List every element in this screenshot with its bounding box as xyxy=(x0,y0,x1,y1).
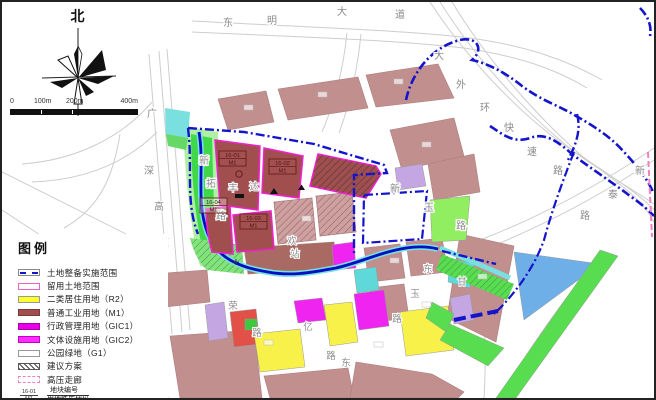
legend-item-label: 普通工业用地（M1） xyxy=(47,307,130,319)
map-label: 欢 xyxy=(287,235,297,247)
road-label-char: 新 xyxy=(390,182,400,195)
map-label: 站 xyxy=(290,248,300,260)
legend-item: 普通工业用地（M1） xyxy=(18,306,168,319)
road-label-char: 新 xyxy=(635,164,645,177)
map-label: 亿 xyxy=(303,321,313,333)
legend-item-label: 文体设施用地（GIC2） xyxy=(47,334,138,346)
parcel-id: 16-02 xyxy=(275,161,290,167)
road-label-char: 大 xyxy=(434,49,444,62)
scale-bar: 0 100m 200m 400m xyxy=(10,98,138,120)
planning-map-page: 东 明 大 道 大 外 环 快 速 路 新 泰 路 广 深 高 速 新 拓 路 … xyxy=(0,0,656,400)
road-label-char: 道 xyxy=(395,8,405,21)
scale-bar-ticks: 0 100m 200m 400m xyxy=(10,98,138,108)
hv-corridor-line xyxy=(648,152,652,237)
parcel-id: 16-04 xyxy=(206,200,222,206)
road-label-char: 玉 xyxy=(424,203,434,214)
map-label: 路 xyxy=(252,327,262,339)
road-label-char: 广 xyxy=(147,108,157,120)
road-label-char: 路 xyxy=(553,164,563,177)
legend-code-top: 地块编号 xyxy=(47,387,89,397)
legend: 图例 土地整备实施范围 留用土地范围 二类居住用地（R2） 普通工业用地（M1）… xyxy=(10,234,168,400)
road-label-char: 明 xyxy=(267,15,277,27)
legend-item-code: 16-01 M1 地块编号 用地性质代码 xyxy=(18,387,168,400)
road-label-char: 新 xyxy=(199,154,209,167)
road-label-char: 泰 xyxy=(608,188,618,201)
legend-item-label: 高压走廊 xyxy=(47,374,82,386)
road-label-char: 高 xyxy=(154,200,164,213)
legend-swatch-parcel-code: 16-01 M1 xyxy=(18,389,40,400)
parcel-label-16-02: 16-02 M1 xyxy=(269,159,296,175)
legend-swatch-proposal-hatch xyxy=(18,363,40,370)
legend-item: 公园绿地（G1） xyxy=(18,346,168,359)
road-label-char: 路 xyxy=(456,219,466,232)
legend-item: 二类居住用地（R2） xyxy=(18,293,168,306)
legend-item: 建议方案 xyxy=(18,360,168,373)
legend-item-label: 建议方案 xyxy=(47,360,82,372)
legend-sample-id: 16-01 xyxy=(20,389,38,396)
scale-bar-rule xyxy=(10,109,138,115)
legend-item-label: 地块编号 用地性质代码 xyxy=(47,387,89,400)
legend-swatch-culture-gic2 xyxy=(18,336,40,343)
legend-swatch-park-g1 xyxy=(18,350,40,357)
map-label: 甘 xyxy=(457,276,467,288)
road-label-char: 深 xyxy=(144,165,154,177)
road-label-char: 快 xyxy=(504,122,514,134)
scale-tick: 200m xyxy=(66,98,84,105)
legend-item: 高压走廊 xyxy=(18,373,168,386)
map-label: 玉 xyxy=(410,289,420,300)
scale-tick: 100m xyxy=(34,98,52,105)
legend-swatch-retained-land xyxy=(18,283,40,290)
scale-tick: 0 xyxy=(10,98,14,105)
road-label-char: 大 xyxy=(337,5,347,18)
map-label: 荣 xyxy=(228,300,238,312)
map-label: 东 xyxy=(423,263,433,275)
map-label: 路 xyxy=(392,313,402,325)
map-label: 丰 xyxy=(228,182,238,194)
legend-item: 行政管理用地（GIC1） xyxy=(18,320,168,333)
legend-item: 土地整备实施范围 xyxy=(18,266,168,279)
legend-item-label: 土地整备实施范围 xyxy=(47,267,117,279)
road-label-char: 路 xyxy=(580,209,590,222)
legend-code-bottom: 用地性质代码 xyxy=(47,396,89,400)
legend-item-label: 公园绿地（G1） xyxy=(47,347,112,359)
road-label-char: 外 xyxy=(456,79,466,91)
map-label: 达 xyxy=(249,181,259,193)
legend-item-label: 二类居住用地（R2） xyxy=(47,293,129,305)
legend-item-label: 留用土地范围 xyxy=(47,280,100,292)
legend-title: 图例 xyxy=(18,238,168,257)
legend-swatch-residential-r2 xyxy=(18,296,40,303)
facility-bar-icon xyxy=(235,194,244,198)
legend-item: 留用土地范围 xyxy=(18,279,168,292)
road-label-char: 环 xyxy=(480,103,490,114)
road-label-char: 拓 xyxy=(206,178,216,190)
road-label-char: 速 xyxy=(527,146,537,158)
parcel-label-16-01: 16-01 M1 xyxy=(219,151,246,167)
parcel-id: 16-01 xyxy=(225,153,240,159)
legend-swatch-industrial-m1 xyxy=(18,309,40,316)
legend-sample-code: M1 xyxy=(25,396,33,400)
map-label: 东 xyxy=(341,357,351,369)
parcel-label-16-04: 16-04 M1 xyxy=(200,198,227,214)
parcel-code: M1 xyxy=(228,161,236,167)
legend-item: 文体设施用地（GIC2） xyxy=(18,333,168,346)
compass-north-label: 北 xyxy=(36,6,120,26)
parcel-code: M1 xyxy=(209,208,217,214)
parcel-id: 16-03 xyxy=(246,216,261,222)
parcel-label-16-03: 16-03 M1 xyxy=(240,214,267,230)
scale-tick: 400m xyxy=(120,98,138,105)
road-label-char: 东 xyxy=(223,16,233,29)
parcel-code: M1 xyxy=(278,169,286,175)
parcel-code: M1 xyxy=(249,224,257,230)
map-label: 路 xyxy=(326,350,336,362)
legend-swatch-hv-corridor xyxy=(18,376,40,383)
legend-swatch-admin-gic1 xyxy=(18,323,40,330)
legend-item-label: 行政管理用地（GIC1） xyxy=(47,320,138,332)
legend-swatch-boundary-line xyxy=(18,269,40,276)
